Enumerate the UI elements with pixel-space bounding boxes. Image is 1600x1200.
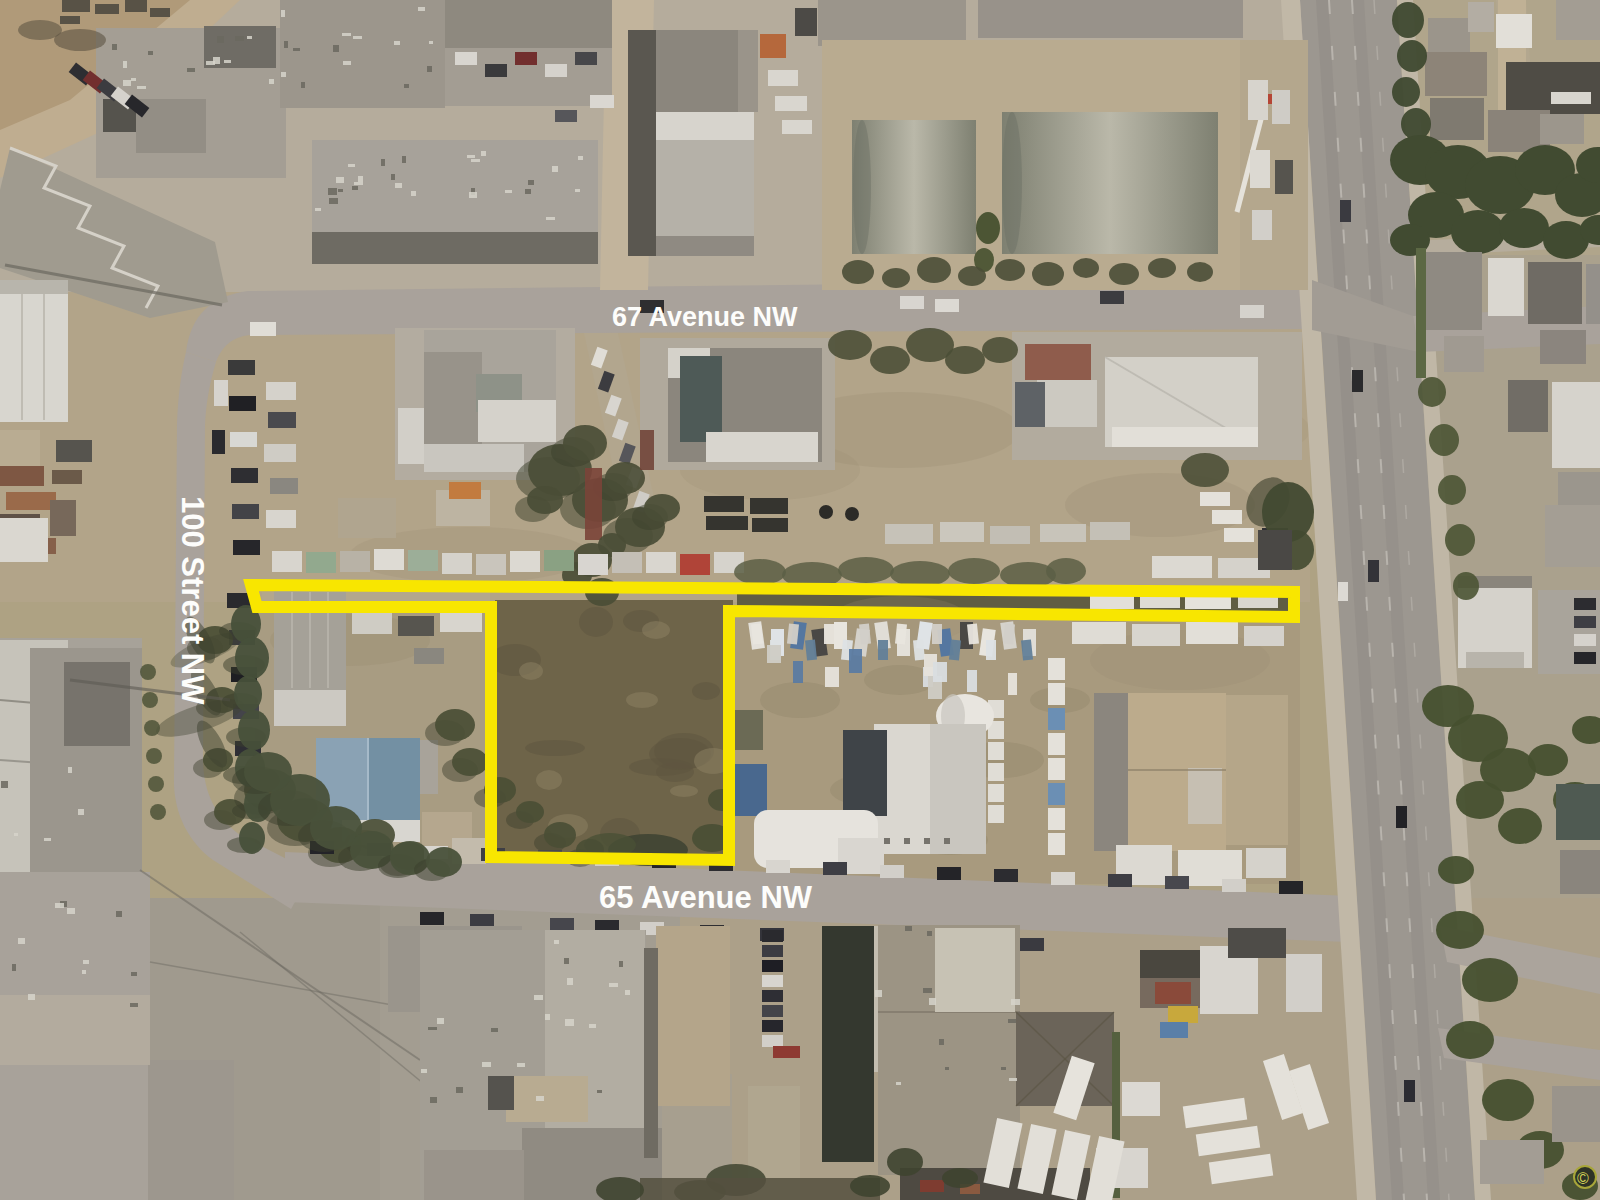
svg-text:©: ©: [1577, 1170, 1589, 1187]
svg-text:67 Avenue NW: 67 Avenue NW: [612, 302, 798, 332]
svg-text:65 Avenue NW: 65 Avenue NW: [599, 880, 813, 915]
svg-text:100 Street NW: 100 Street NW: [175, 496, 210, 705]
